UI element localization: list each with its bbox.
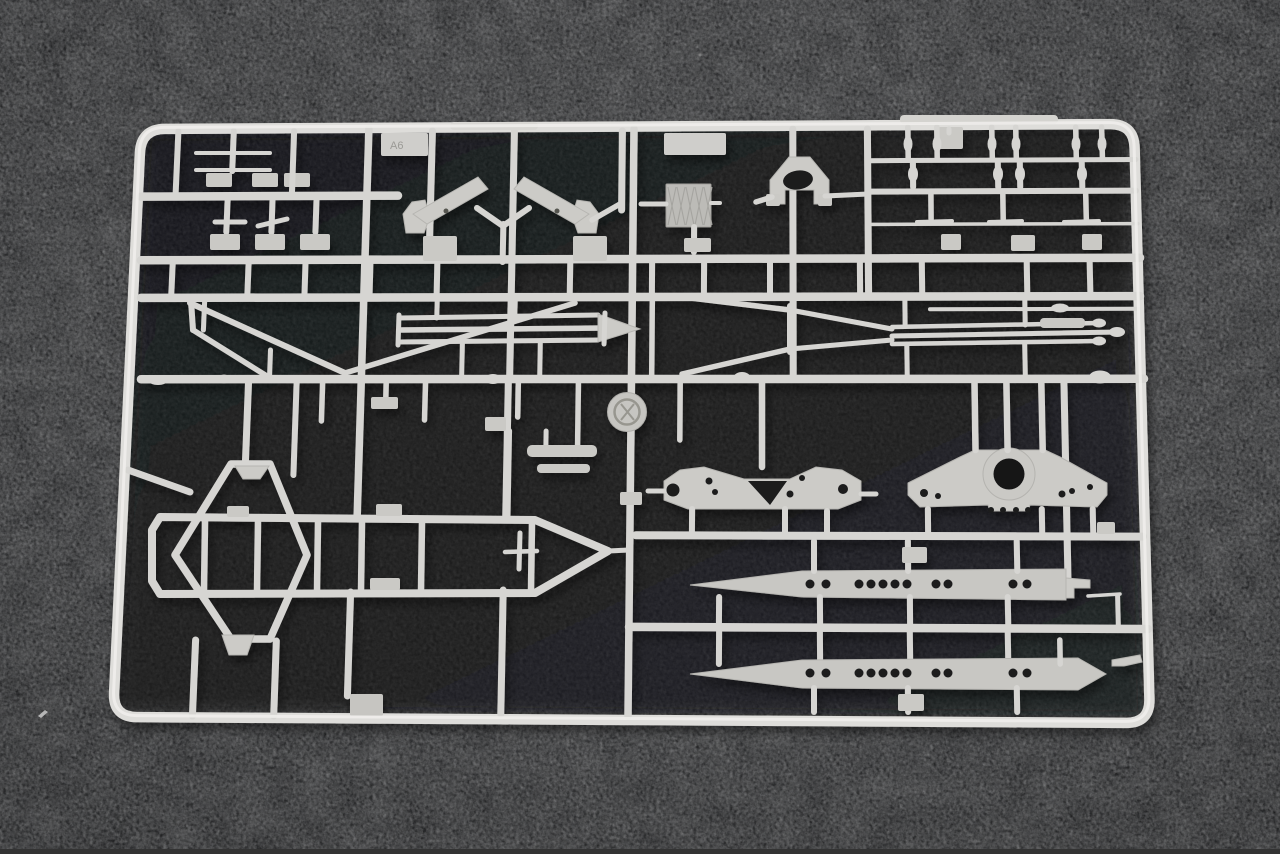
- svg-text:A6: A6: [390, 140, 403, 152]
